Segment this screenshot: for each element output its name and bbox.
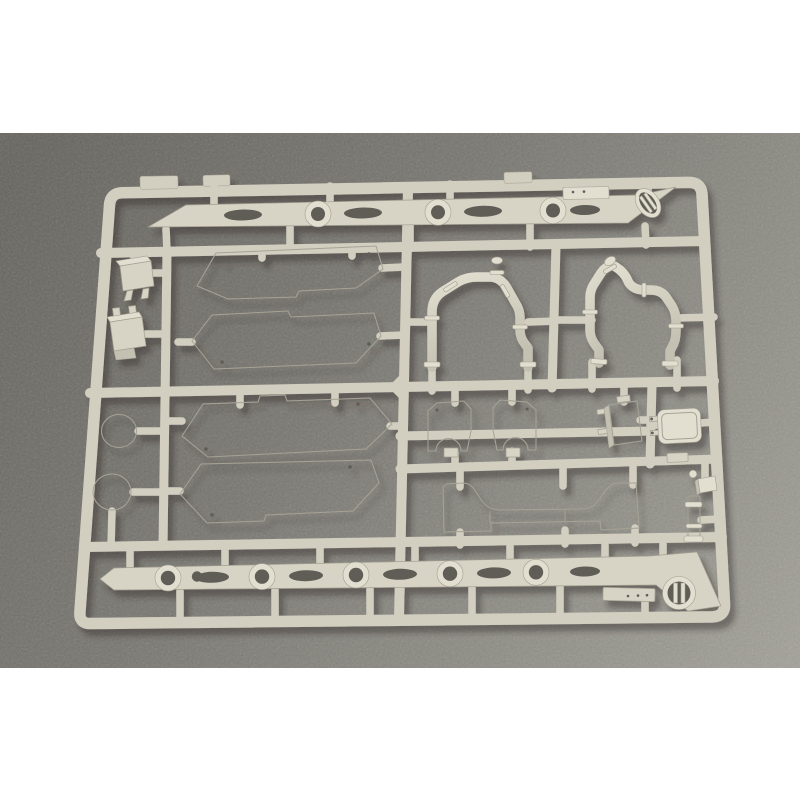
part-stowage-box bbox=[603, 587, 655, 601]
gate-tab bbox=[504, 172, 532, 183]
letterbox-top bbox=[0, 0, 800, 133]
letterbox-bottom bbox=[0, 668, 800, 800]
sprue-illustration bbox=[0, 133, 800, 668]
part-small-tab bbox=[667, 453, 688, 463]
strip-hatch-round bbox=[663, 577, 696, 610]
strip-top-plate bbox=[563, 187, 609, 200]
photo-area bbox=[0, 133, 800, 668]
gate-tab bbox=[140, 176, 178, 190]
photo-page bbox=[0, 0, 800, 800]
